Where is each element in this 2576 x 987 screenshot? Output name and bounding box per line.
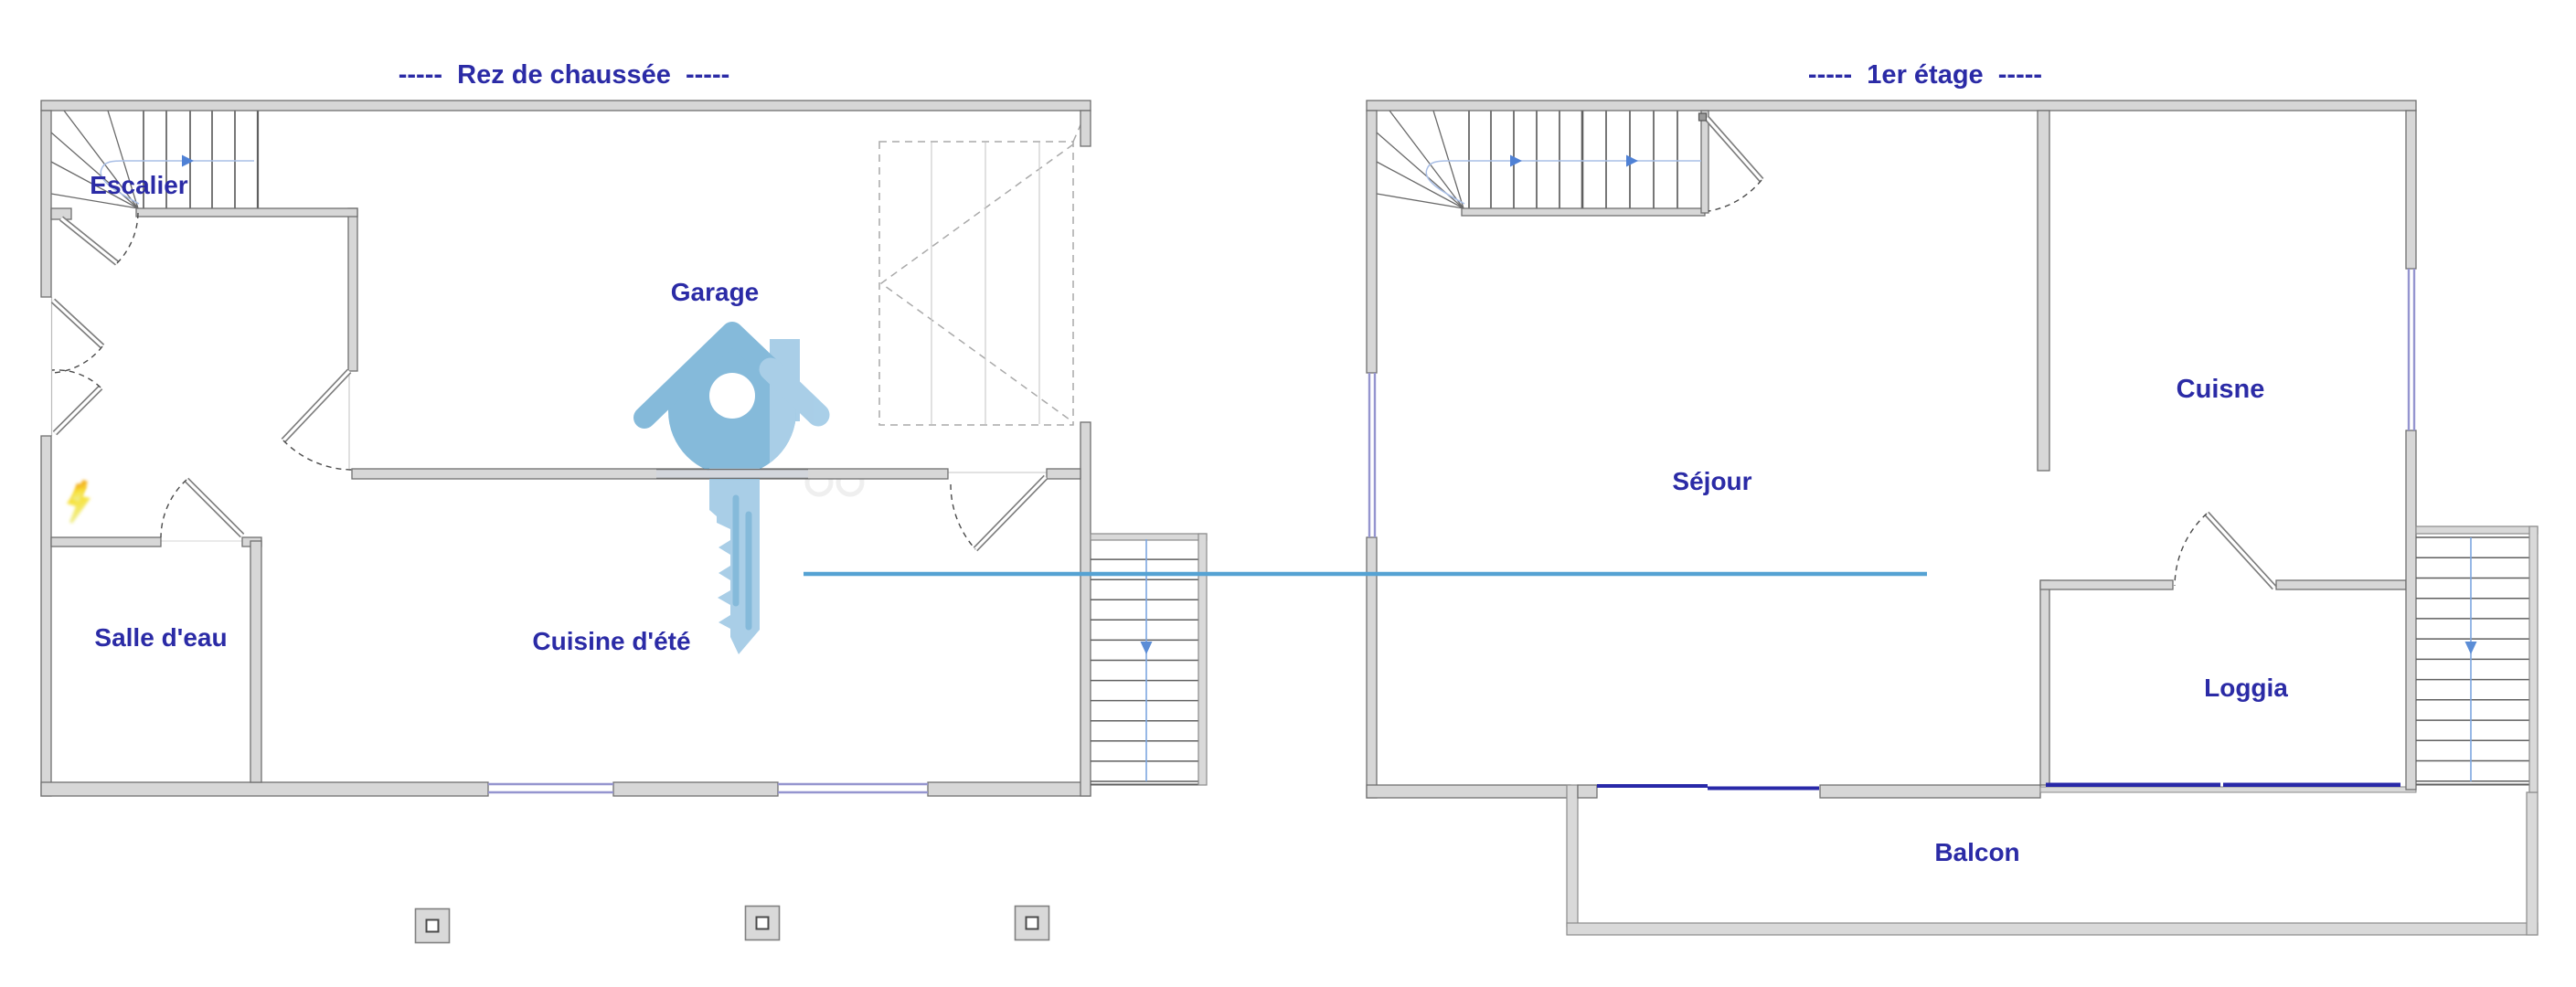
svg-text:Balcon: Balcon [1934,838,2019,866]
svg-text:Salle d'eau: Salle d'eau [94,623,227,652]
svg-text:Séjour: Séjour [1672,467,1751,495]
svg-text:Cuisine d'été: Cuisine d'été [532,627,690,655]
svg-text:Cuisne: Cuisne [2177,375,2265,404]
svg-text:Escalier: Escalier [90,171,188,199]
svg-text:Garage: Garage [671,278,760,306]
svg-text:----- 1er étage -----: ----- 1er étage ----- [1808,60,2042,90]
svg-text:----- Rez de chaussée -----: ----- Rez de chaussée ----- [399,60,730,90]
svg-text:Loggia: Loggia [2204,674,2288,702]
